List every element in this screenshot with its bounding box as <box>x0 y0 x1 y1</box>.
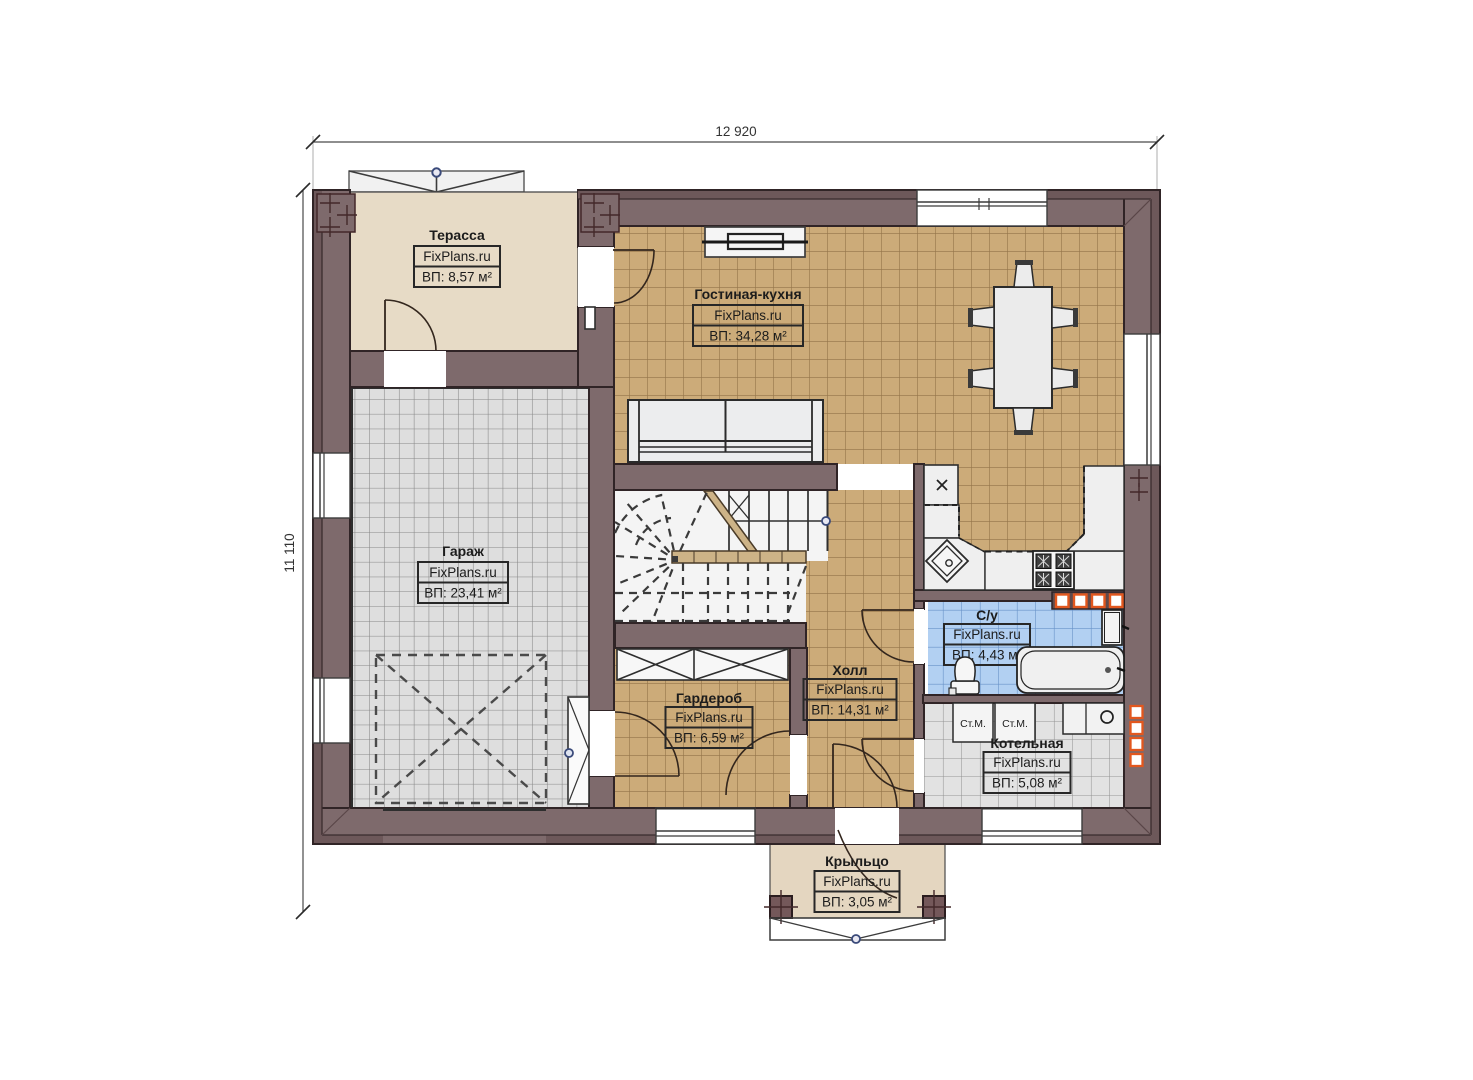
svg-text:ВП: 3,05 м²: ВП: 3,05 м² <box>822 895 893 910</box>
svg-text:Крыльцо: Крыльцо <box>825 853 889 869</box>
svg-text:Ст.М.: Ст.М. <box>960 718 986 730</box>
svg-text:Котельная: Котельная <box>990 735 1063 751</box>
svg-text:FixPlans.ru: FixPlans.ru <box>953 627 1021 642</box>
svg-text:Ст.М.: Ст.М. <box>1002 718 1028 730</box>
svg-text:Холл: Холл <box>832 662 867 678</box>
svg-text:FixPlans.ru: FixPlans.ru <box>423 249 491 264</box>
svg-text:ВП: 14,31 м²: ВП: 14,31 м² <box>811 703 889 718</box>
svg-text:FixPlans.ru: FixPlans.ru <box>675 710 743 725</box>
svg-text:FixPlans.ru: FixPlans.ru <box>816 682 884 697</box>
svg-text:ВП: 34,28 м²: ВП: 34,28 м² <box>709 329 787 344</box>
svg-text:Гостиная-кухня: Гостиная-кухня <box>694 286 801 302</box>
svg-text:Терасса: Терасса <box>429 227 485 243</box>
svg-text:ВП: 5,08 м²: ВП: 5,08 м² <box>992 776 1063 791</box>
svg-text:FixPlans.ru: FixPlans.ru <box>823 874 891 889</box>
svg-text:ВП: 6,59 м²: ВП: 6,59 м² <box>674 731 745 746</box>
svg-text:FixPlans.ru: FixPlans.ru <box>993 755 1061 770</box>
svg-text:Гардероб: Гардероб <box>676 690 743 706</box>
svg-text:FixPlans.ru: FixPlans.ru <box>714 308 782 323</box>
svg-text:Гараж: Гараж <box>442 543 485 559</box>
svg-text:ВП: 23,41 м²: ВП: 23,41 м² <box>424 586 502 601</box>
svg-text:ВП: 8,57 м²: ВП: 8,57 м² <box>422 270 493 285</box>
svg-text:FixPlans.ru: FixPlans.ru <box>429 565 497 580</box>
svg-text:С/у: С/у <box>976 607 998 623</box>
svg-text:12 920: 12 920 <box>715 124 756 139</box>
svg-text:11 110: 11 110 <box>282 533 297 572</box>
